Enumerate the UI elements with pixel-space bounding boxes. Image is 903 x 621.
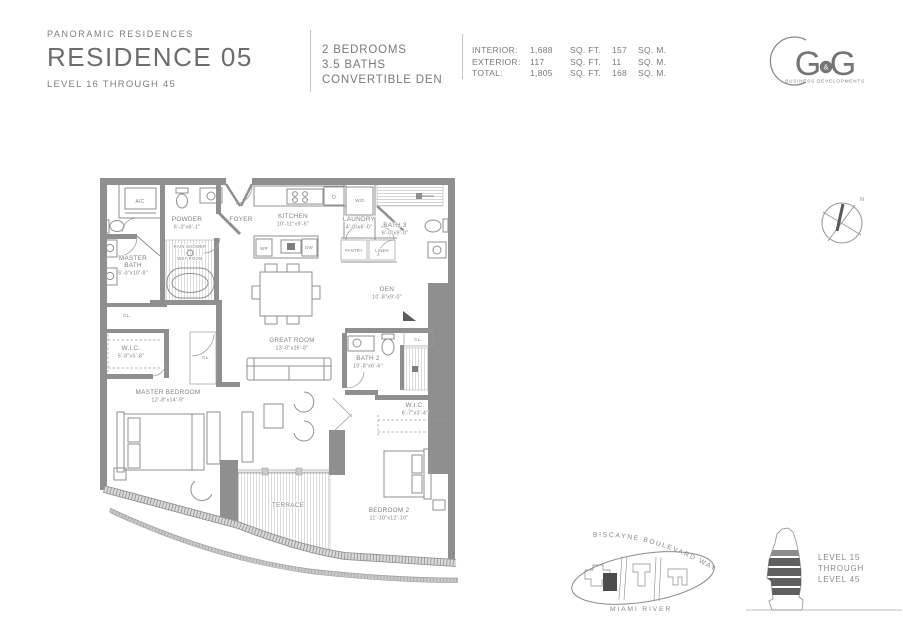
header-divider-1: [310, 30, 311, 92]
fixture-label: RAIN SHOWER: [174, 244, 207, 249]
building-stack: LEVEL 15 THROUGH LEVEL 45: [745, 518, 903, 621]
console-table: [242, 412, 253, 462]
room-label: POWDER6'-3"x6'-1": [172, 216, 202, 231]
master-bed: [117, 412, 204, 472]
area-sqft: 1,688: [530, 45, 570, 57]
toilet: [110, 221, 124, 232]
area-sqm-unit: SQ. M.: [638, 68, 674, 80]
fixture-label: LINEN: [375, 248, 389, 253]
compass-cross-line: [823, 212, 861, 235]
area-label: TOTAL:: [472, 68, 530, 80]
area-label: INTERIOR:: [472, 45, 530, 57]
toilet: [382, 339, 394, 355]
room-label: BATH 36'-0"x9'-0": [382, 222, 409, 237]
toilet: [177, 194, 188, 208]
fixture-label: CL.: [123, 313, 131, 318]
fixture-label: A/C: [135, 199, 144, 205]
table-row: TOTAL: 1,805 SQ. FT. 168 SQ. M.: [472, 68, 674, 80]
dining-table: [252, 264, 320, 324]
room-label: MASTER BEDROOM12'-8"x14'-9": [136, 389, 201, 404]
area-label: EXTERIOR:: [472, 57, 530, 69]
north-label: N: [860, 197, 864, 203]
gg-logo: G G & BUSINESS DEVELOPMENTS: [762, 25, 892, 103]
area-sqm: 168: [612, 68, 638, 80]
logo-letter-g2: G: [830, 45, 856, 83]
powder-fixtures: [176, 188, 222, 208]
room-label: MASTERBATH6'-0"x10'-8": [118, 255, 148, 277]
feature-den: CONVERTIBLE DEN: [322, 73, 442, 88]
area-sqft-unit: SQ. FT.: [570, 45, 612, 57]
bed-2: [384, 449, 431, 499]
room-label: LAUNDRY4'-0"x6'-0": [343, 216, 376, 231]
logo-letter-g1: G: [795, 45, 821, 83]
wall-wedge: [403, 311, 416, 321]
round-chair: [191, 481, 212, 501]
sink-vanity: [428, 242, 446, 258]
logo-tagline: BUSINESS DEVELOPMENTS: [785, 79, 865, 85]
area-sqm-unit: SQ. M.: [638, 45, 674, 57]
feature-baths: 3.5 BATHS: [322, 58, 442, 73]
unit-dividers: [619, 556, 661, 601]
area-sqm: 157: [612, 45, 638, 57]
shower-drain: [412, 366, 418, 372]
floorplan-brochure-page: PANORAMIC RESIDENCES RESIDENCE 05 LEVEL …: [0, 0, 903, 621]
nightstand: [433, 500, 445, 510]
fixture-label: CL.: [414, 337, 422, 342]
area-sqft: 1,805: [530, 68, 570, 80]
feature-bedrooms: 2 BEDROOMS: [322, 43, 442, 58]
highlighted-unit: [603, 573, 617, 591]
fixture-label: WR: [260, 246, 268, 251]
lounge-chair: [294, 392, 314, 412]
level-range: LEVEL 16 THROUGH 45: [47, 79, 253, 90]
bath3-shower-floor: [377, 184, 443, 206]
floor-plan: POWDER6'-3"x6'-1"FOYERKITCHEN10'-11"x9'-…: [95, 165, 465, 608]
sofa: [247, 358, 331, 380]
area-sqft-unit: SQ. FT.: [570, 57, 612, 69]
area-sqft: 117: [530, 57, 570, 69]
compass-north-arm: [837, 204, 843, 231]
fixture-label: O: [332, 195, 336, 201]
lounge-chair: [294, 421, 314, 441]
river-label: MIAMI RIVER: [610, 606, 672, 613]
unit-outlines: [585, 564, 687, 586]
area-sqm: 11: [612, 57, 638, 69]
area-sqm-unit: SQ. M.: [638, 57, 674, 69]
brand-name: PANORAMIC RESIDENCES: [47, 29, 253, 39]
dresser: [207, 412, 220, 464]
building-footprint: [568, 543, 718, 613]
room-label: BATH 210'-8"x6'-6": [353, 355, 383, 370]
table-row: EXTERIOR: 117 SQ. FT. 11 SQ. M.: [472, 57, 674, 69]
stack-line: THROUGH: [818, 564, 864, 573]
header-title-block: PANORAMIC RESIDENCES RESIDENCE 05 LEVEL …: [47, 29, 253, 90]
site-plan: BISCAYNE BOULEVARD WAY MIAMI RIVER: [560, 518, 760, 621]
unit-features: 2 BEDROOMS 3.5 BATHS CONVERTIBLE DEN: [322, 43, 442, 88]
room-label: GREAT ROOM13'-0"x26'-8": [269, 337, 315, 352]
stack-line: LEVEL 15: [818, 553, 860, 562]
table-row: INTERIOR: 1,688 SQ. FT. 157 SQ. M.: [472, 45, 674, 57]
stack-line: LEVEL 45: [818, 575, 860, 584]
area-sqft-unit: SQ. FT.: [570, 68, 612, 80]
page-title: RESIDENCE 05: [47, 42, 253, 73]
fixture-label: PANTRY: [345, 248, 363, 253]
header-divider-2: [462, 34, 463, 79]
room-label: BEDROOM 211'-10"x12'-10": [369, 507, 410, 522]
fixture-label: WET ROOM: [177, 256, 203, 261]
room-label: TERRACE: [272, 502, 304, 509]
room-label: W.I.C.5'-8"x5'-8": [118, 345, 145, 360]
fixture-label: DW: [305, 245, 313, 250]
room-label: DEN10'-8"x9'-0": [372, 286, 402, 301]
coffee-table: [264, 404, 283, 428]
room-label: FOYER: [229, 216, 252, 223]
toilet: [425, 220, 441, 232]
compass: N: [812, 190, 877, 255]
master-bedroom-furniture: [114, 412, 220, 501]
great-room-furniture: [242, 358, 331, 462]
fixture-label: W/D: [355, 198, 365, 203]
area-table: INTERIOR: 1,688 SQ. FT. 157 SQ. M. EXTER…: [472, 45, 674, 80]
room-label: KITCHEN10'-11"x9'-6": [277, 213, 310, 228]
fixture-label: CL.: [202, 355, 210, 360]
room-label: W.I.C.6'-7"x3'-4": [402, 402, 429, 417]
logo-ampersand: &: [823, 63, 828, 72]
